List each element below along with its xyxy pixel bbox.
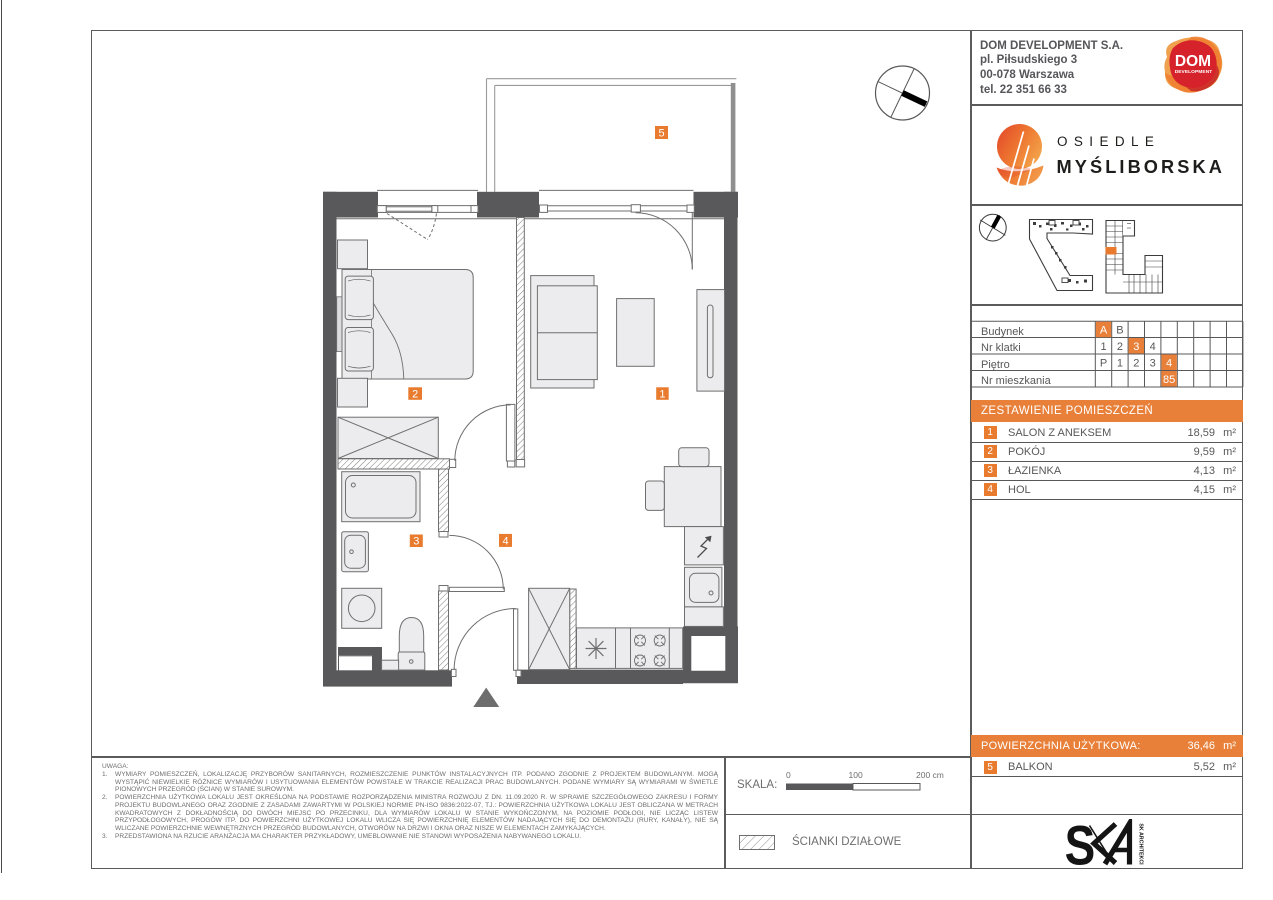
svg-text:1: 1 bbox=[659, 389, 665, 401]
svg-text:A: A bbox=[1100, 324, 1108, 336]
svg-text:3: 3 bbox=[1150, 357, 1156, 369]
svg-text:4: 4 bbox=[1166, 357, 1172, 369]
svg-text:200 cm: 200 cm bbox=[916, 770, 944, 780]
svg-text:0: 0 bbox=[786, 770, 791, 780]
svg-text:2: 2 bbox=[1117, 341, 1123, 353]
svg-text:3: 3 bbox=[413, 536, 419, 548]
svg-text:85: 85 bbox=[1163, 374, 1175, 386]
svg-text:P: P bbox=[1100, 357, 1107, 369]
svg-text:4: 4 bbox=[1150, 341, 1156, 353]
svg-text:DOM: DOM bbox=[1175, 53, 1211, 70]
svg-text:3: 3 bbox=[1133, 341, 1139, 353]
svg-text:2: 2 bbox=[1133, 357, 1139, 369]
svg-text:100: 100 bbox=[849, 770, 863, 780]
svg-text:DEVELOPMENT: DEVELOPMENT bbox=[1175, 69, 1213, 75]
svg-text:1: 1 bbox=[1100, 341, 1106, 353]
svg-text:SK ARCHITEKCI: SK ARCHITEKCI bbox=[1138, 823, 1144, 865]
svg-text:4: 4 bbox=[502, 536, 508, 548]
svg-text:B: B bbox=[1116, 324, 1123, 336]
svg-text:5: 5 bbox=[658, 128, 664, 140]
svg-text:2: 2 bbox=[412, 389, 418, 401]
svg-text:1: 1 bbox=[1117, 357, 1123, 369]
